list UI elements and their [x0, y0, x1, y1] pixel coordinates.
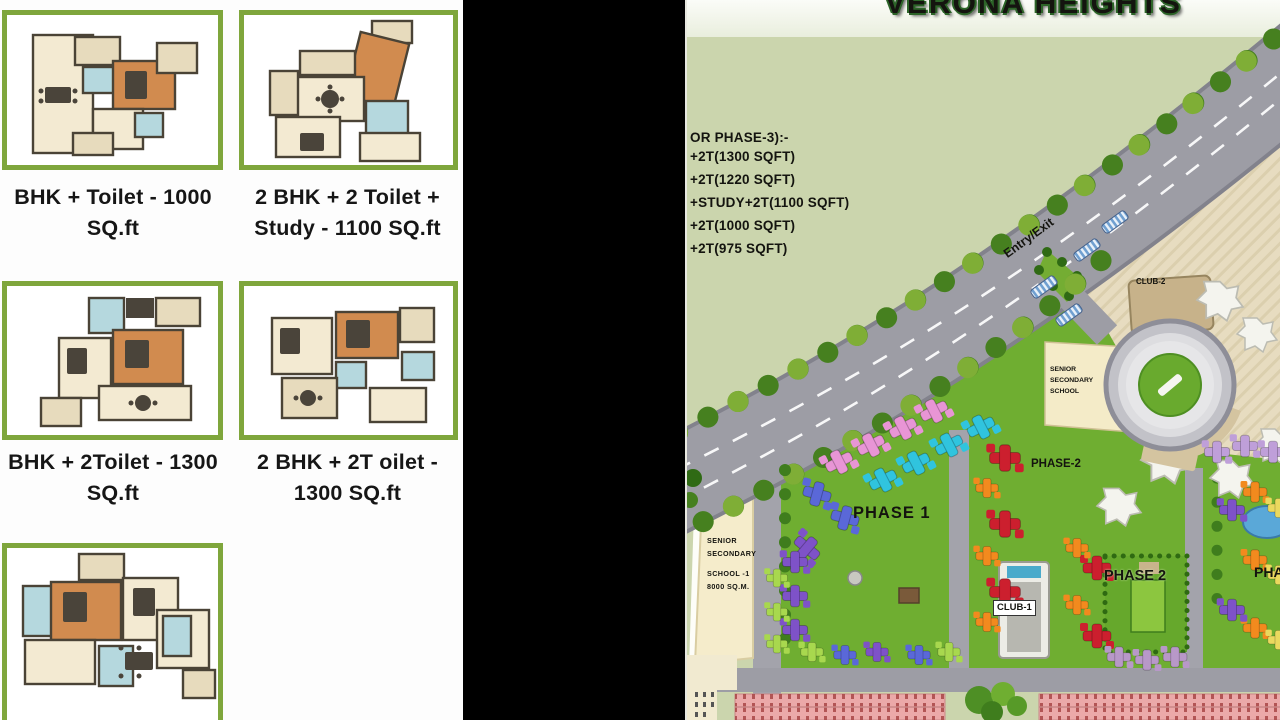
unit-list-item: +2T(1300 SQFT): [690, 149, 795, 164]
school-left-line: SENIOR: [707, 534, 756, 547]
floor-plan-drawing-2: [244, 15, 453, 165]
unit-list-item: +2T(1000 SQFT): [690, 218, 795, 233]
site-plan-panel: VERONA HEIGHTS OR PHASE-3):- +2T(1300 SQ…: [685, 0, 1280, 720]
floor-plans-panel: BHK + Toilet - 1000 SQ.ft 2 BHK + 2 Toil…: [0, 0, 463, 720]
fountain: [848, 571, 862, 585]
school-left-line: SECONDARY: [707, 547, 756, 560]
floor-plan-drawing-4: [244, 286, 453, 435]
phase1-label: PHASE 1: [853, 504, 931, 523]
school-upper-label: SENIOR SECONDARY SCHOOL: [1050, 364, 1093, 397]
caption-line: 1300 SQ.ft: [232, 478, 463, 509]
floor-plan-card-5: [2, 543, 223, 720]
caption-line: SQ.ft: [0, 478, 226, 509]
floor-plan-drawing-5: [7, 548, 218, 720]
unit-list-heading: OR PHASE-3):-: [690, 130, 789, 145]
floor-plan-card-2: [239, 10, 458, 170]
caption-line: SQ.ft: [0, 213, 226, 244]
project-title: VERONA HEIGHTS: [885, 0, 1182, 21]
school-left-label: SENIOR SECONDARY SCHOOL -1 8000 SQ.M.: [707, 534, 756, 593]
school-upper-line: SCHOOL: [1050, 386, 1093, 397]
phase2-lower-label: PHASE 2: [1104, 568, 1166, 584]
video-frame: BHK + Toilet - 1000 SQ.ft 2 BHK + 2 Toil…: [0, 0, 1280, 720]
floor-plan-caption-2: 2 BHK + 2 Toilet + Study - 1100 SQ.ft: [232, 182, 463, 244]
caption-line: BHK + 2Toilet - 1300: [0, 447, 226, 478]
floor-plan-card-1: [2, 10, 223, 170]
floor-plan-caption-1: BHK + Toilet - 1000 SQ.ft: [0, 182, 226, 244]
caption-line: Study - 1100 SQ.ft: [232, 213, 463, 244]
floor-plan-drawing-1: [7, 15, 218, 165]
floor-plan-drawing-3: [7, 286, 218, 435]
unit-list-item: +2T(1220 SQFT): [690, 172, 795, 187]
unit-list-item: +STUDY+2T(1100 SQFT): [690, 195, 849, 210]
caption-line: 2 BHK + 2 Toilet +: [232, 182, 463, 213]
school-upper-line: SECONDARY: [1050, 375, 1093, 386]
black-divider: [463, 0, 685, 720]
site-plan-graphic: [687, 0, 1280, 720]
school-upper-line: SENIOR: [1050, 364, 1093, 375]
unit-list-item: +2T(975 SQFT): [690, 241, 788, 256]
school-left-line: SCHOOL -1: [707, 567, 756, 580]
club2-label: CLUB-2: [1136, 277, 1165, 286]
floor-plan-caption-4: 2 BHK + 2T oilet - 1300 SQ.ft: [232, 447, 463, 509]
school-left-line: 8000 SQ.M.: [707, 580, 756, 593]
phase2-upper-label: PHASE-2: [1031, 458, 1081, 470]
floor-plan-card-3: [2, 281, 223, 440]
floor-plan-card-4: [239, 281, 458, 440]
club1-label: CLUB-1: [993, 600, 1036, 616]
hut: [899, 588, 919, 603]
caption-line: 2 BHK + 2T oilet -: [232, 447, 463, 478]
floor-plan-caption-3: BHK + 2Toilet - 1300 SQ.ft: [0, 447, 226, 509]
caption-line: BHK + Toilet - 1000: [0, 182, 226, 213]
phase3-partial-label: PHA: [1254, 564, 1280, 580]
